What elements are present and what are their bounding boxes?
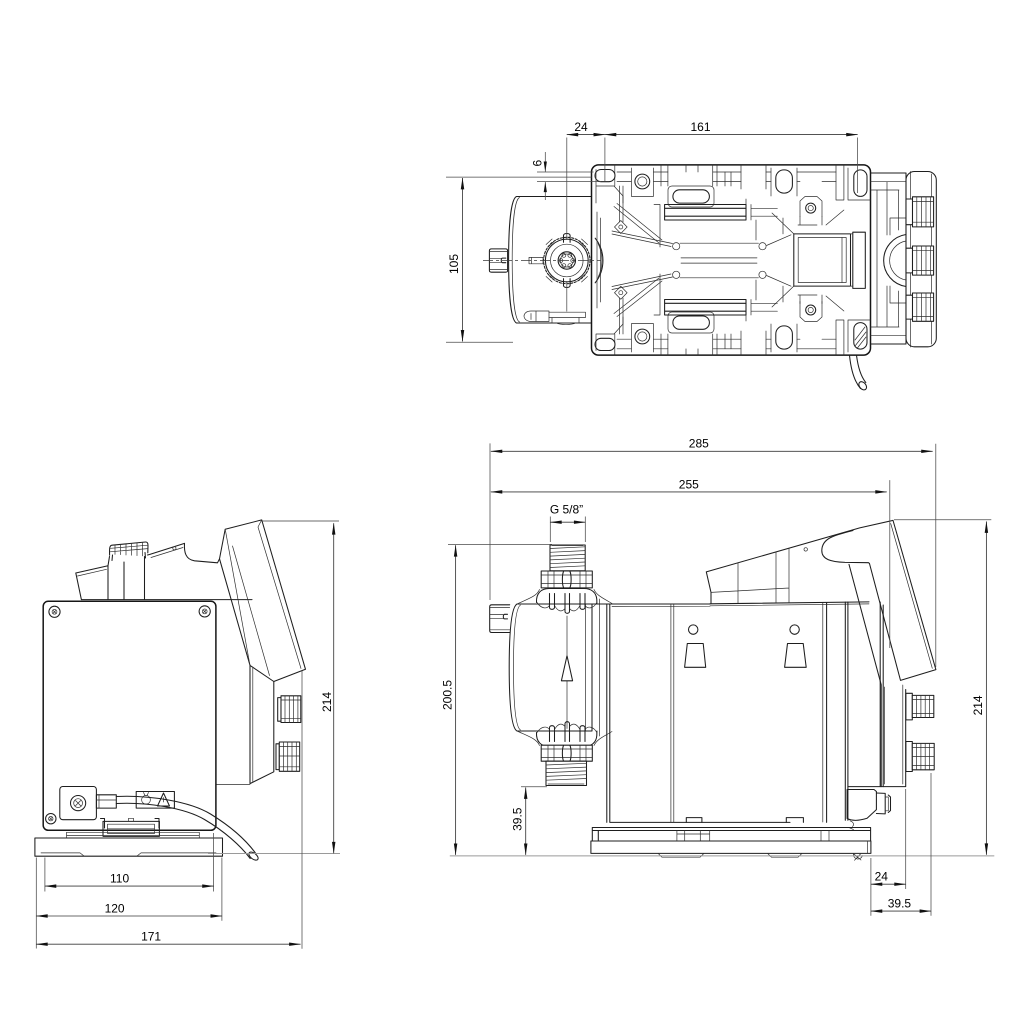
svg-text:200.5: 200.5 bbox=[441, 680, 455, 710]
svg-text:24: 24 bbox=[574, 120, 588, 134]
svg-text:255: 255 bbox=[679, 477, 699, 491]
svg-text:214: 214 bbox=[971, 695, 985, 715]
svg-text:24: 24 bbox=[875, 869, 889, 883]
svg-text:105: 105 bbox=[447, 254, 461, 274]
svg-text:285: 285 bbox=[689, 437, 709, 451]
svg-text:120: 120 bbox=[105, 901, 125, 915]
svg-text:39.5: 39.5 bbox=[888, 896, 912, 910]
svg-text:161: 161 bbox=[690, 120, 710, 134]
svg-text:214: 214 bbox=[320, 692, 334, 712]
svg-text:6: 6 bbox=[531, 160, 545, 167]
svg-text:110: 110 bbox=[110, 872, 129, 886]
svg-text:G 5/8”: G 5/8” bbox=[550, 503, 583, 517]
svg-text:171: 171 bbox=[141, 930, 161, 944]
svg-text:39.5: 39.5 bbox=[510, 807, 524, 831]
